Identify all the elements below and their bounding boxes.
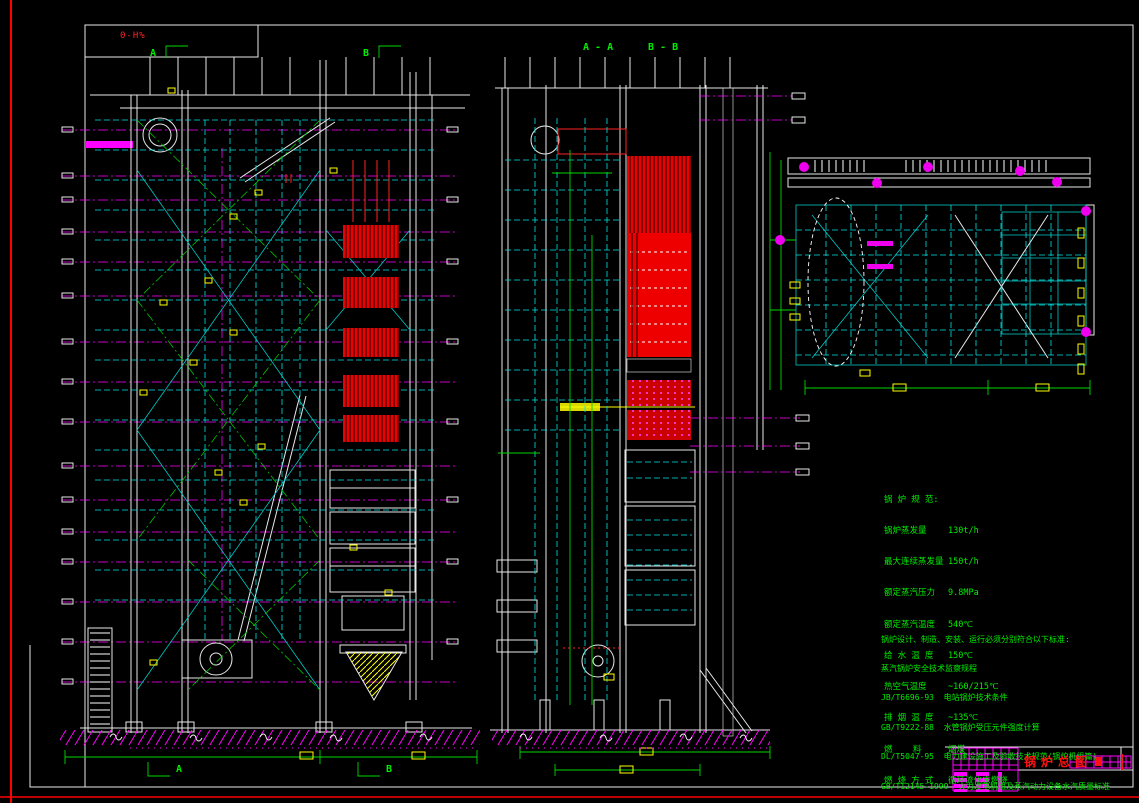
pipe-penetrations bbox=[775, 162, 1091, 337]
section-marker-a-top: A bbox=[150, 48, 156, 59]
platform-grating bbox=[812, 160, 870, 172]
standards-item: GB/T12145-1999 火力发电机组及蒸汽动力设备水汽质量标准 bbox=[881, 782, 1110, 792]
spec-row: 最大连续蒸发量150t/h bbox=[884, 557, 1008, 567]
standards-item: 蒸汽锅炉安全技术监察规程 bbox=[881, 664, 1110, 674]
economizer bbox=[627, 359, 691, 372]
spec-title: 锅 炉 规 范: bbox=[884, 495, 1008, 505]
drum-plan bbox=[808, 198, 864, 366]
cad-sheet: 0-H% A B A - A B - B A B 锅 炉 规 范: 锅炉蒸发量1… bbox=[0, 0, 1139, 803]
ground-hatch bbox=[60, 730, 480, 745]
tube-bundles bbox=[286, 160, 399, 442]
spec-row: 额定蒸汽压力9.8MPa bbox=[884, 588, 1008, 598]
ladder bbox=[90, 630, 110, 730]
sheet-corner-label: 0-H% bbox=[120, 31, 146, 41]
plan-view bbox=[770, 152, 1094, 395]
drum-centerline-tag bbox=[85, 141, 133, 148]
left-elevation-view bbox=[60, 46, 480, 776]
section-label-aa: A - A bbox=[583, 42, 613, 53]
section-label-bb: B - B bbox=[648, 42, 678, 53]
blower bbox=[582, 645, 614, 677]
side-ladder bbox=[723, 88, 733, 736]
section-marker-a-bottom: A bbox=[176, 764, 182, 775]
drawing-title: 锅炉总图 bbox=[1024, 753, 1092, 770]
section-marker-b-bottom: B bbox=[386, 764, 392, 775]
spec-row: 锅炉蒸发量130t/h bbox=[884, 526, 1008, 536]
standards-item: JB/T6696-93 电站锅炉技术条件 bbox=[881, 693, 1110, 703]
ground-hatch bbox=[492, 730, 770, 745]
standards-item: GB/T9222-88 水管锅炉受压元件强度计算 bbox=[881, 723, 1110, 733]
steam-drum bbox=[143, 118, 177, 152]
section-view bbox=[490, 57, 809, 776]
standards-intro: 锅炉设计、制造、安装、运行必须分别符合以下标准: bbox=[881, 635, 1110, 645]
standards-notes: 锅炉设计、制造、安装、运行必须分别符合以下标准: 蒸汽锅炉安全技术监察规程 JB… bbox=[881, 615, 1110, 801]
section-marker-b-top: B bbox=[363, 48, 369, 59]
